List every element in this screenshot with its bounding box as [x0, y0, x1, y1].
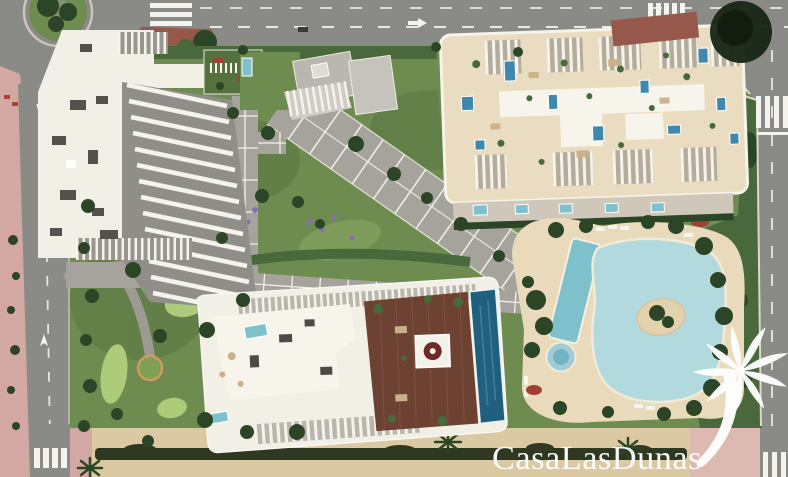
aerial-render-page: CasaLasDunas — [0, 0, 788, 477]
terrace-pool — [515, 204, 528, 213]
tree — [83, 379, 97, 393]
rooftop-pool — [640, 80, 649, 93]
jacuzzi-inner — [553, 349, 569, 365]
ac-unit — [80, 44, 92, 52]
watermark-text: CasaLasDunas — [492, 440, 702, 477]
furniture — [395, 326, 407, 333]
tree-canopy-core — [717, 10, 753, 46]
shrub — [602, 406, 614, 418]
palm-crown — [737, 367, 746, 376]
bench — [12, 102, 18, 106]
rooftop-pool — [717, 97, 726, 110]
lounger — [684, 233, 693, 237]
ac-unit — [88, 150, 98, 164]
flower — [350, 236, 355, 241]
tree — [236, 293, 250, 307]
furniture — [490, 123, 500, 129]
crosswalk-stripe — [763, 452, 768, 477]
tree — [348, 136, 364, 152]
furniture — [576, 150, 588, 157]
villa-pool — [242, 58, 252, 76]
shrub — [710, 272, 726, 288]
tree — [513, 47, 523, 57]
ac-unit — [100, 230, 118, 239]
building-b — [440, 25, 749, 230]
terrace-pool — [473, 205, 487, 215]
tree — [78, 242, 90, 254]
pergola-underlay — [612, 149, 653, 184]
rooftop-pool — [730, 133, 739, 144]
crosswalk-stripe — [774, 96, 779, 128]
ac-unit — [52, 136, 66, 145]
roof-planter — [214, 58, 223, 63]
tree — [292, 196, 304, 208]
tree — [315, 219, 325, 229]
rooftop-pool — [504, 61, 516, 81]
skylight — [311, 63, 329, 79]
furniture — [395, 394, 407, 401]
crosswalk-stripe — [756, 96, 761, 128]
island-shrub — [662, 316, 674, 328]
hedge-bump — [384, 445, 416, 455]
palm-tree — [78, 458, 102, 477]
ac-unit — [320, 367, 332, 375]
tree — [199, 322, 215, 338]
crosswalk-stripe — [150, 12, 192, 17]
aerial-render: CasaLasDunas — [0, 0, 788, 477]
shrub — [548, 222, 564, 238]
tree — [85, 289, 99, 303]
tree — [431, 42, 441, 52]
car — [298, 27, 308, 32]
stop-line — [757, 132, 788, 135]
tree — [197, 412, 213, 428]
flower — [307, 219, 313, 225]
lounger — [634, 404, 643, 408]
terrace-pool — [651, 203, 664, 212]
tree — [289, 424, 305, 440]
red-flowers — [526, 385, 542, 395]
tree — [387, 167, 401, 181]
tree — [48, 16, 64, 32]
tree — [238, 45, 248, 55]
crosswalk-stripe — [61, 448, 67, 468]
island-shrub — [649, 305, 665, 321]
shrub — [553, 401, 567, 415]
tree — [493, 250, 505, 262]
villa-roof — [348, 55, 397, 114]
tree — [80, 334, 92, 346]
pool-area — [512, 215, 745, 423]
tree — [78, 420, 90, 432]
tree — [12, 272, 20, 280]
rooftop-pool — [461, 96, 473, 110]
tree — [7, 386, 15, 394]
shrub — [526, 290, 546, 310]
lounger — [608, 225, 617, 229]
terrace-pool — [559, 204, 572, 213]
ac-unit — [250, 355, 259, 367]
tree — [142, 435, 154, 447]
tree — [454, 217, 468, 231]
lounger — [596, 227, 605, 231]
tree — [216, 232, 228, 244]
tree — [240, 425, 254, 439]
rooftop-pool — [592, 126, 604, 141]
furniture — [529, 72, 539, 78]
flower — [332, 216, 337, 221]
flower — [252, 207, 258, 213]
shrub — [579, 219, 593, 233]
shrub — [695, 237, 713, 255]
crosswalk-stripe — [52, 448, 58, 468]
tree — [10, 345, 20, 355]
furniture — [608, 59, 620, 66]
crosswalk-stripe — [43, 448, 49, 468]
tree — [59, 3, 77, 21]
ac-unit — [279, 334, 292, 342]
shrub — [668, 218, 684, 234]
crosswalk-stripe — [150, 21, 192, 26]
tree — [421, 192, 433, 204]
tree — [12, 422, 20, 430]
shrub — [535, 317, 553, 335]
tree — [227, 107, 239, 119]
crosswalk-stripe — [765, 96, 770, 128]
crosswalk-bottom-right — [763, 452, 786, 477]
lounger — [646, 406, 655, 410]
lounger — [620, 226, 629, 230]
ac-unit — [50, 228, 62, 236]
shrub — [641, 215, 655, 229]
tree — [522, 276, 534, 288]
rooftop-pool — [548, 94, 558, 109]
tree — [111, 408, 123, 420]
crosswalk-stripe — [772, 452, 777, 477]
ac-unit — [304, 319, 314, 326]
plant — [216, 82, 224, 90]
furniture — [659, 97, 669, 103]
roof-slab — [212, 304, 357, 401]
crosswalk-top-left — [150, 3, 192, 26]
terrace-pool — [605, 203, 618, 212]
shrub — [657, 407, 671, 421]
tree — [7, 306, 15, 314]
roof-box — [66, 160, 76, 168]
crosswalk-stripe — [781, 452, 786, 477]
rooftop-pool — [475, 140, 485, 150]
bench — [4, 95, 10, 99]
garden-circle-feature — [138, 356, 162, 380]
ac-unit — [60, 190, 76, 200]
shrub — [524, 342, 540, 358]
ac-unit — [70, 100, 86, 110]
roof-slab — [625, 113, 664, 140]
tree — [261, 126, 275, 140]
tree — [125, 262, 141, 278]
ac-unit — [96, 96, 108, 104]
tree — [8, 235, 18, 245]
rooftop-pool — [698, 48, 709, 63]
shrub — [686, 400, 702, 416]
shrub — [715, 307, 733, 325]
tree — [153, 329, 167, 343]
lounger — [524, 376, 528, 385]
crosswalk-stripe — [34, 448, 40, 468]
rooftop-pool — [667, 125, 680, 134]
crosswalk-stripe — [150, 3, 192, 8]
tree — [81, 199, 95, 213]
crosswalk-stripe — [783, 96, 788, 128]
tree — [255, 189, 269, 203]
